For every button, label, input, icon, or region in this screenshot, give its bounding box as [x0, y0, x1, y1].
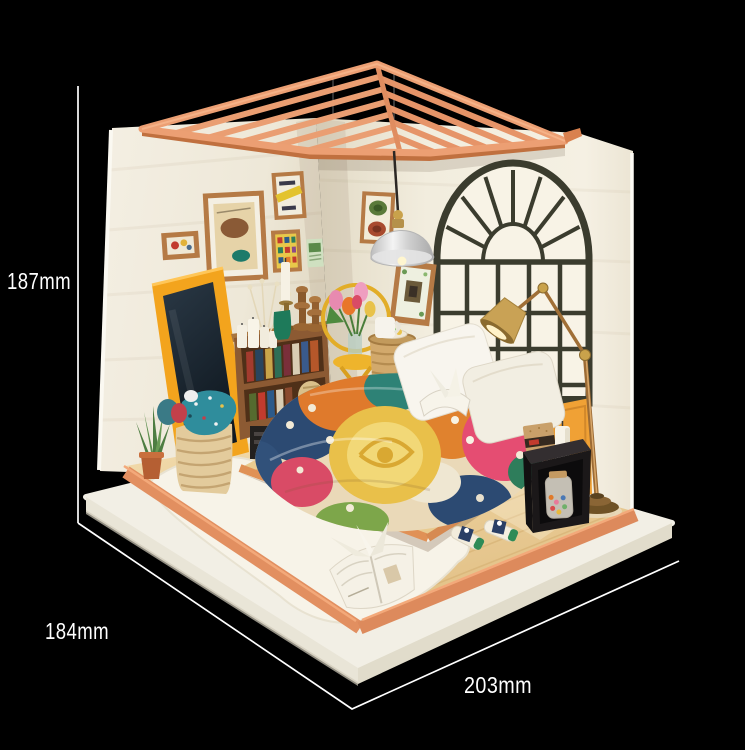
candy-jar — [545, 470, 573, 518]
lamp-joint — [538, 283, 548, 293]
lamp-joint — [580, 350, 591, 361]
dimension-depth-label: 184mm — [45, 618, 109, 644]
dimension-height-label: 187mm — [7, 268, 71, 294]
dollhouse-product-photo: 187mm 184mm 203mm — [0, 0, 745, 750]
green-vase — [274, 310, 292, 340]
product-photo-stage: 187mm 184mm 203mm — [0, 0, 745, 750]
leaning-photo-frame — [389, 260, 436, 326]
picture-frame-poster — [203, 190, 269, 282]
dimension-width-label: 203mm — [464, 672, 532, 698]
pendant-bulb — [398, 257, 407, 266]
pendant-fitting — [393, 210, 403, 220]
green-card — [306, 239, 323, 268]
picture-frame-banner — [271, 171, 306, 220]
picture-frame-small-art — [161, 231, 200, 261]
